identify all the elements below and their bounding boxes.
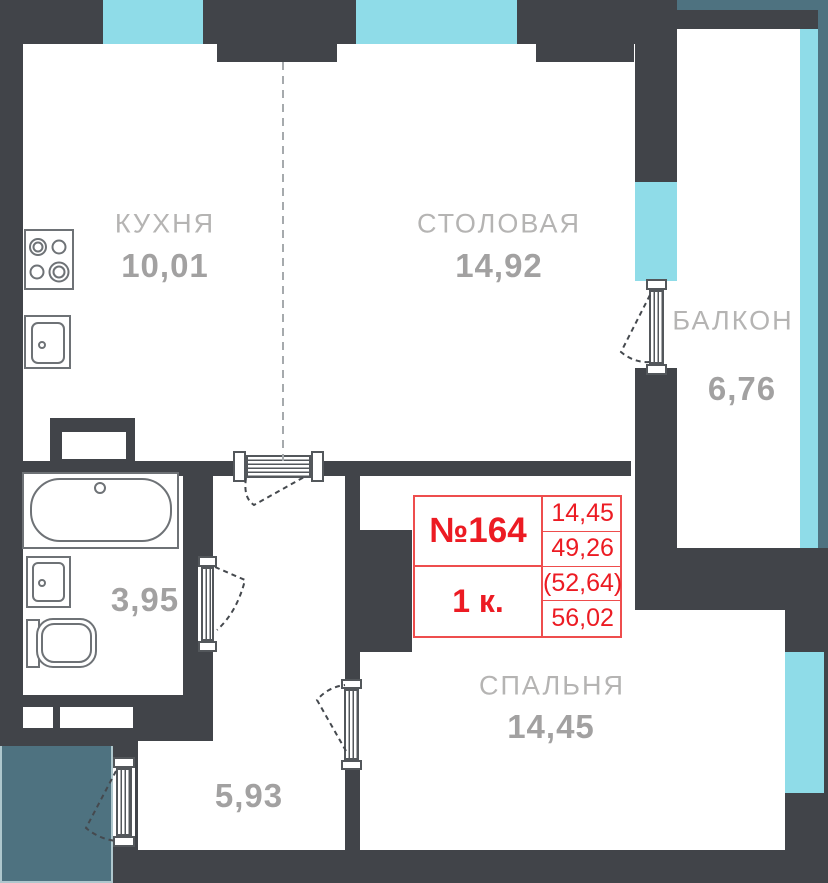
unit-area: 49,26 <box>543 532 622 567</box>
room-area-kitchen: 10,01 <box>121 247 209 285</box>
door-jamb-icon <box>646 279 667 290</box>
niche-kitchen-duct <box>62 432 126 459</box>
door-leaf-icon <box>201 567 214 641</box>
door-jamb-icon <box>198 556 217 567</box>
door-balcony <box>646 279 667 375</box>
door-entry <box>113 757 135 847</box>
wall-top-middle-pier <box>217 44 337 62</box>
wall-left-outer <box>0 0 23 744</box>
door-jamb-icon <box>198 641 217 652</box>
wall-top-middle <box>203 0 356 44</box>
wall-bedroom-pylon <box>360 530 412 652</box>
window-bedroom <box>785 652 824 793</box>
room-label-dining: СТОЛОВАЯ <box>417 209 581 240</box>
door-jamb-icon <box>341 760 362 770</box>
window-dining <box>356 0 517 44</box>
wall-balcony-divider-lower <box>635 368 677 610</box>
door-jamb-icon <box>113 757 135 768</box>
unit-living-area: 14,45 <box>543 497 622 532</box>
unit-info-table: №164 14,45 49,26 1 к. (52,64) 56,02 <box>413 495 622 638</box>
room-label-balcony: БАЛКОН <box>672 306 793 337</box>
toilet-icon <box>27 619 96 667</box>
unit-type: 1 к. <box>415 567 543 637</box>
room-area-dining: 14,92 <box>455 247 543 285</box>
door-kitchen-hallway <box>233 451 324 482</box>
wall-balcony-bottom <box>677 548 828 610</box>
wall-balcony-top <box>677 10 818 29</box>
room-area-balcony: 6,76 <box>708 370 776 408</box>
door-leaf-icon <box>116 768 132 836</box>
wall-top-right-pier <box>536 44 634 62</box>
room-label-kitchen: КУХНЯ <box>115 209 215 240</box>
neighbor-zone-top-strip <box>677 0 828 10</box>
window-balcony-glazing <box>800 29 818 548</box>
door-leaf-icon <box>344 689 359 760</box>
door-leaf-icon <box>649 290 664 364</box>
wall-bottom-outer <box>113 850 828 883</box>
door-jamb-icon <box>341 679 362 689</box>
room-area-bathroom: 3,95 <box>111 581 179 619</box>
unit-total-area: 56,02 <box>543 601 622 636</box>
door-bedroom <box>341 679 362 770</box>
door-jamb-icon <box>311 451 324 482</box>
neighbor-zone-right-strip <box>818 10 828 548</box>
door-jamb-icon <box>646 364 667 375</box>
window-kitchen <box>103 0 203 44</box>
unit-area-with-balcony: (52,64) <box>543 567 622 602</box>
door-bathroom <box>198 556 217 652</box>
kitchen-sink-icon <box>25 316 70 368</box>
wall-bedroom-window-edge <box>824 652 828 793</box>
unit-number: №164 <box>415 497 543 567</box>
floor-plan: КУХНЯ 10,01 СТОЛОВАЯ 14,92 БАЛКОН 6,76 С… <box>0 0 828 883</box>
room-area-bedroom: 14,45 <box>507 708 595 746</box>
wall-bedroom-right-lower <box>785 793 828 850</box>
room-area-hallway: 5,93 <box>215 777 283 815</box>
door-leaf-icon <box>246 455 311 478</box>
bathtub-icon <box>23 473 178 548</box>
neighbor-zone-stairwell <box>0 744 113 883</box>
stove-icon <box>25 230 73 289</box>
window-dining-balcony <box>635 182 677 281</box>
wall-balcony-divider-upper <box>635 0 677 182</box>
door-swing-arc <box>215 567 245 630</box>
room-label-bedroom: СПАЛЬНЯ <box>479 671 625 702</box>
wall-bedroom-left <box>345 476 360 850</box>
wall-bedroom-right-upper <box>785 610 828 652</box>
door-jamb-icon <box>233 451 246 482</box>
niche-bath-left <box>23 707 53 728</box>
niche-bath-right <box>60 707 133 728</box>
bathroom-sink-icon <box>27 557 70 607</box>
door-jamb-icon <box>113 836 135 847</box>
